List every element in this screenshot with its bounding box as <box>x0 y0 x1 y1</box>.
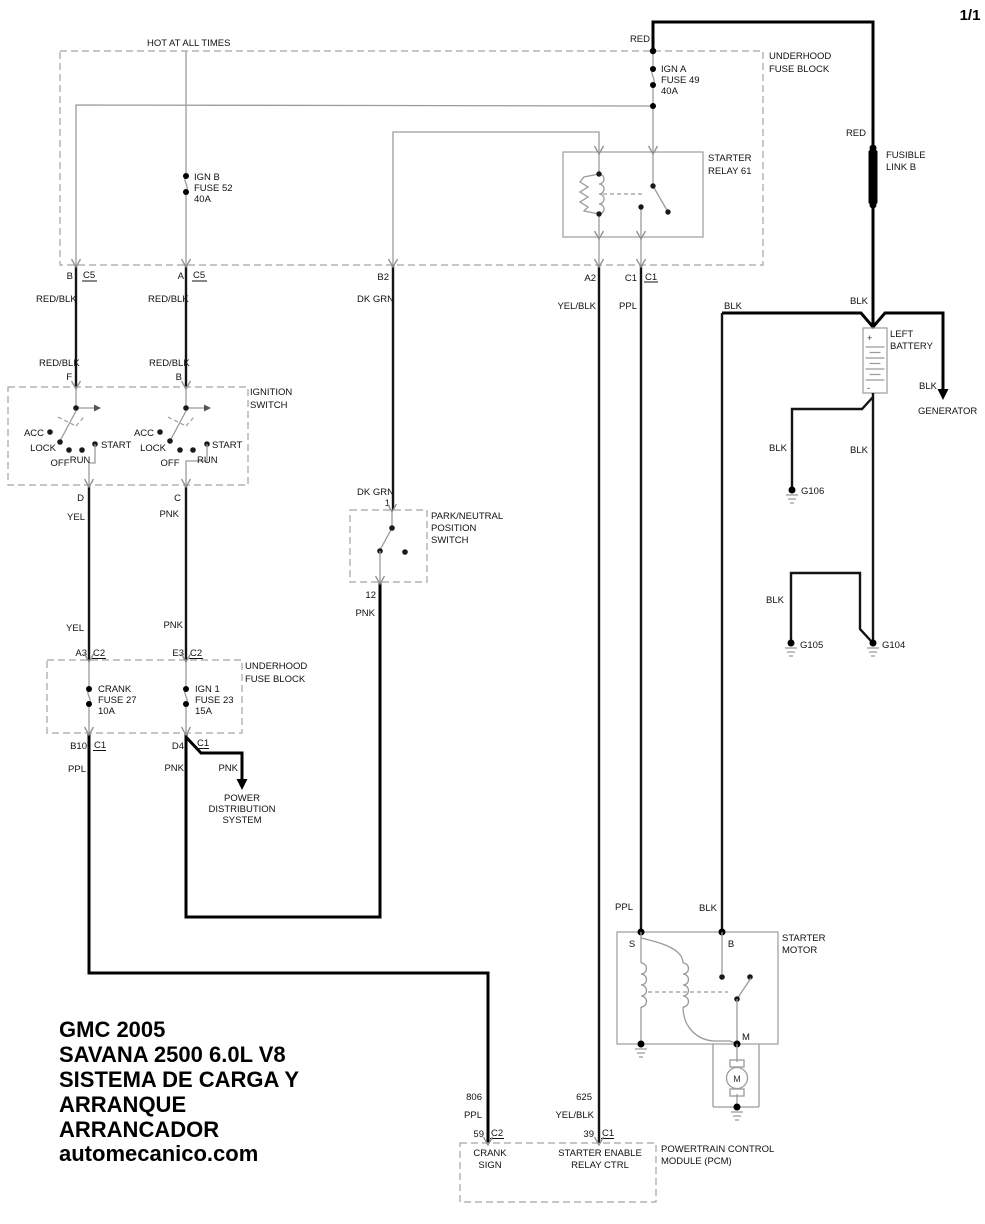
pin-a-label: A <box>178 271 185 282</box>
ign-left-off-contact <box>66 447 72 453</box>
fuse-ign-b-top-node <box>183 173 189 179</box>
pin-b10-label: B10 <box>70 741 87 752</box>
blk-label-g105: BLK <box>766 595 785 606</box>
g104-node <box>870 640 877 647</box>
ign-left-acc-contact <box>47 429 53 435</box>
title-line-2: SAVANA 2500 6.0L V8 <box>59 1042 286 1067</box>
pin-c-label: C <box>174 493 181 504</box>
fuse-crank-name: CRANK <box>98 684 132 695</box>
underhood-fuse-block-top-label-1: UNDERHOOD <box>769 51 831 62</box>
blk-label-generator: BLK <box>919 381 938 392</box>
fuse-crank-bottom-node <box>86 701 92 707</box>
fusible-link-top-node <box>870 145 877 152</box>
pin-39-label: 39 <box>583 1129 594 1140</box>
pin-c1-label: C1 <box>625 273 637 284</box>
relay-contact-node <box>638 204 643 209</box>
fuse-ign-a-id: FUSE 49 <box>661 75 700 86</box>
pnk-label-2: PNK <box>163 620 183 631</box>
starter-enable-label-2: RELAY CTRL <box>571 1160 629 1171</box>
yelblk-label-1: YEL/BLK <box>557 301 596 312</box>
starter-motor-label-2: MOTOR <box>782 945 817 956</box>
hot-at-all-times-label: HOT AT ALL TIMES <box>147 38 230 49</box>
ign-right-run-label: RUN <box>197 455 218 466</box>
ign-right-lock-contact <box>167 438 173 444</box>
redblk-label-1: RED/BLK <box>36 294 77 305</box>
circuit-806-label: 806 <box>466 1092 482 1103</box>
ign-left-common <box>73 405 79 411</box>
terminal-b-label: B <box>728 939 734 950</box>
ign-right-run-contact <box>190 447 196 453</box>
fuse-crank-top-node <box>86 686 92 692</box>
dkgrn-label-1: DK GRN <box>357 294 394 305</box>
pin-d4-label: D4 <box>172 741 184 752</box>
fuse-ign1-bottom-node <box>183 701 189 707</box>
ign-right-start-label: START <box>212 440 242 451</box>
ign-left-start-label: START <box>101 440 131 451</box>
terminal-s-label: S <box>629 939 635 950</box>
fusible-link-body <box>869 150 878 204</box>
pn-open-contact <box>402 549 408 555</box>
fuse-ign1-name: IGN 1 <box>195 684 220 695</box>
g106-label: G106 <box>801 486 824 497</box>
starter-relay-label-2: RELAY 61 <box>708 166 751 177</box>
ign-right-common <box>183 405 189 411</box>
fuse-ign-b-name: IGN B <box>194 172 220 183</box>
g105-label: G105 <box>800 640 823 651</box>
battery-plus: + <box>867 333 872 343</box>
connector-c5-label-2: C5 <box>193 270 205 281</box>
fuse-ign-a-name: IGN A <box>661 64 687 75</box>
circuit-625-label: 625 <box>576 1092 592 1103</box>
relay-switch-arm-end <box>665 209 670 214</box>
pin-a2-label: A2 <box>584 273 596 284</box>
pnk-label-4: PNK <box>218 763 238 774</box>
redblk-label-2: RED/BLK <box>148 294 189 305</box>
pcm-label-2: MODULE (PCM) <box>661 1156 732 1167</box>
pnk-label-1: PNK <box>159 509 179 520</box>
blk-label-left: BLK <box>724 301 743 312</box>
fuse-ign1-rating: 15A <box>195 706 213 717</box>
fuse-ign1-id: FUSE 23 <box>195 695 234 706</box>
ppl-label-4: PPL <box>464 1110 482 1121</box>
ign-left-lock-label: LOCK <box>30 443 57 454</box>
pcm-label-1: POWERTRAIN CONTROL <box>661 1144 774 1155</box>
ignition-switch-label-1: IGNITION <box>250 387 292 398</box>
underhood-fuse-block-top-label-2: FUSE BLOCK <box>769 64 830 75</box>
wiring-diagram: 1/1 HOT AT ALL TIMES UNDERHOOD FUSE BLOC… <box>0 0 985 1224</box>
fuse-ign-b-bottom-node <box>183 189 189 195</box>
blk-label-negative: BLK <box>850 445 869 456</box>
starter-enable-label-1: STARTER ENABLE <box>558 1148 642 1159</box>
redblk-label-3: RED/BLK <box>39 358 80 369</box>
pin-a3-label: A3 <box>75 648 87 659</box>
power-dist-label-1: POWER <box>224 793 260 804</box>
ppl-label-3: PPL <box>615 902 633 913</box>
connector-c1-label-b10: C1 <box>94 740 106 751</box>
fuse-ign-b-rating: 40A <box>194 194 212 205</box>
relay-coil-top-node <box>596 171 601 176</box>
g104-label: G104 <box>882 640 905 651</box>
connector-c2-label-2: C2 <box>190 648 202 659</box>
pn-pivot <box>389 525 395 531</box>
yelblk-label-2: YEL/BLK <box>555 1110 594 1121</box>
solenoid-ground-node <box>638 1041 645 1048</box>
dkgrn-label-2: DK GRN <box>357 487 394 498</box>
fusible-link-label-1: FUSIBLE <box>886 150 926 161</box>
fuse49-output-junction <box>650 103 656 109</box>
red-label-fusible: RED <box>846 128 866 139</box>
wiring-diagram-page: 1/1 HOT AT ALL TIMES UNDERHOOD FUSE BLOC… <box>0 0 985 1224</box>
title-line-5: ARRANCADOR <box>59 1117 219 1142</box>
pnk-label-5: PNK <box>355 608 375 619</box>
blk-label-starter: BLK <box>699 903 718 914</box>
power-dist-label-3: SYSTEM <box>222 815 261 826</box>
relay-coil-bottom-node <box>596 211 601 216</box>
fuse-ign1-top-node <box>183 686 189 692</box>
lower-fuse-block-label-2: FUSE BLOCK <box>245 674 306 685</box>
ppl-label-2: PPL <box>68 764 86 775</box>
park-neutral-label-2: POSITION <box>431 523 477 534</box>
ign-left-off-label: OFF <box>51 458 70 469</box>
g105-node <box>788 640 795 647</box>
pin-d-label: D <box>77 493 84 504</box>
park-neutral-label-1: PARK/NEUTRAL <box>431 511 503 522</box>
starter-motor-label-1: STARTER <box>782 933 826 944</box>
ign-right-off-label: OFF <box>161 458 180 469</box>
lower-fuse-block-label-1: UNDERHOOD <box>245 661 307 672</box>
ign-right-off-contact <box>177 447 183 453</box>
battery-label-2: BATTERY <box>890 341 934 352</box>
crank-sign-label-1: CRANK <box>473 1148 507 1159</box>
fuse-ign-a-rating: 40A <box>661 86 679 97</box>
g106-node <box>789 487 796 494</box>
park-neutral-pin12-label: 12 <box>365 590 376 601</box>
starter-relay-label-1: STARTER <box>708 153 752 164</box>
yel-label-1: YEL <box>67 512 85 523</box>
fuse-ign-a-bottom-node <box>650 82 656 88</box>
ign-right-acc-label: ACC <box>134 428 154 439</box>
crank-sign-label-2: SIGN <box>478 1160 501 1171</box>
feed-junction <box>650 48 656 54</box>
fusible-link-label-2: LINK B <box>886 162 916 173</box>
ign-left-lock-contact <box>57 439 63 445</box>
fuse-ign-b-id: FUSE 52 <box>194 183 233 194</box>
redblk-label-4: RED/BLK <box>149 358 190 369</box>
connector-c1-label-d4: C1 <box>197 738 209 749</box>
page-number: 1/1 <box>960 7 981 24</box>
pin-b-label: B <box>67 271 73 282</box>
red-label-top: RED <box>630 34 650 45</box>
title-line-4: ARRANQUE <box>59 1092 186 1117</box>
motor-ground-node <box>734 1104 741 1111</box>
fuse-crank-id: FUSE 27 <box>98 695 137 706</box>
pin-e3-label: E3 <box>172 648 184 659</box>
connector-c1-label: C1 <box>645 272 657 283</box>
pin-59-label: 59 <box>473 1129 484 1140</box>
battery-minus: - <box>867 383 870 393</box>
power-dist-label-2: DISTRIBUTION <box>208 804 275 815</box>
relay-switch-pivot <box>650 183 655 188</box>
battery-label-1: LEFT <box>890 329 913 340</box>
blk-label-above-battery: BLK <box>850 296 869 307</box>
pin-b2-label: B2 <box>377 272 389 283</box>
ignition-switch-label-2: SWITCH <box>250 400 288 411</box>
title-line-1: GMC 2005 <box>59 1017 165 1042</box>
park-neutral-label-3: SWITCH <box>431 535 469 546</box>
ign-right-lock-label: LOCK <box>140 443 167 454</box>
ppl-label-1: PPL <box>619 301 637 312</box>
connector-c2-label-1: C2 <box>93 648 105 659</box>
blk-label-g106: BLK <box>769 443 788 454</box>
generator-label: GENERATOR <box>918 406 977 417</box>
fuse-ign-a-top-node <box>650 66 656 72</box>
ign-left-acc-label: ACC <box>24 428 44 439</box>
fuse-crank-rating: 10A <box>98 706 116 717</box>
motor-symbol: M <box>733 1074 741 1084</box>
ign-left-run-label: RUN <box>70 455 91 466</box>
connector-c5-label-1: C5 <box>83 270 95 281</box>
contact-b-node <box>719 974 725 980</box>
pnk-label-3: PNK <box>164 763 184 774</box>
ign-right-acc-contact <box>157 429 163 435</box>
yel-label-2: YEL <box>66 623 84 634</box>
title-line-6-website: automecanico.com <box>59 1141 258 1166</box>
title-line-3: SISTEMA DE CARGA Y <box>59 1067 299 1092</box>
ign-left-run-contact <box>79 447 85 453</box>
terminal-m-label: M <box>742 1032 750 1043</box>
